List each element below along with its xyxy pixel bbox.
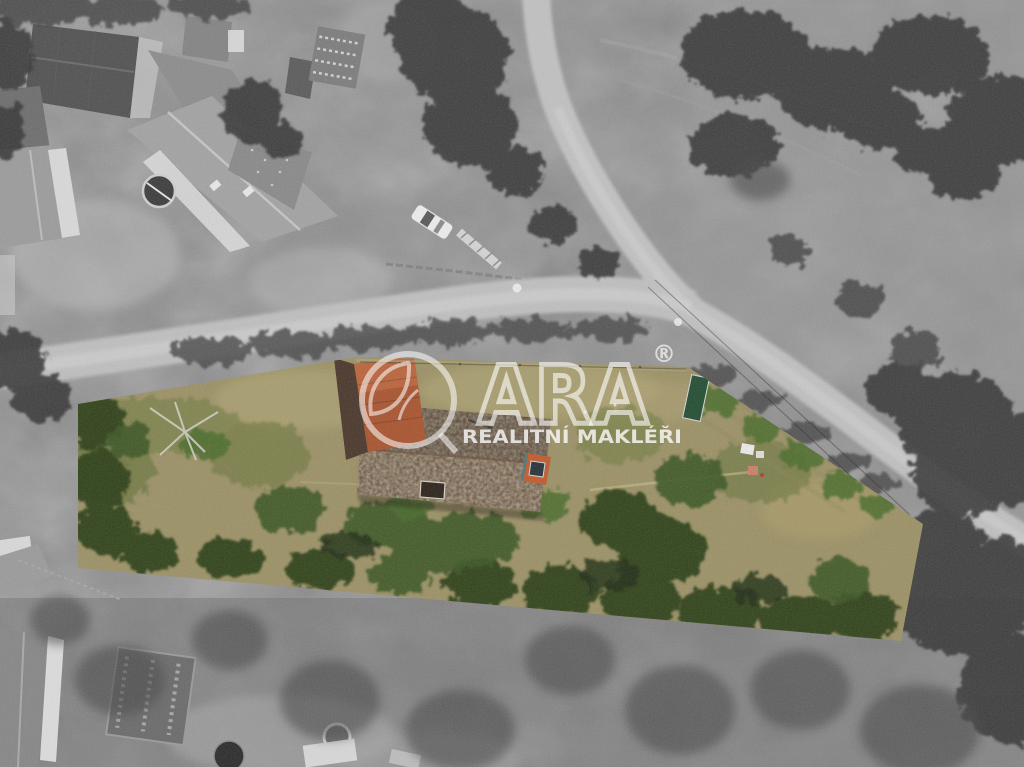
aerial-photo-canvas: ARA ® REALITNÍ MAKLÉŘI <box>0 0 1024 767</box>
aerial-property-photo: ARA ® REALITNÍ MAKLÉŘI <box>0 0 1024 767</box>
watermark-tagline: REALITNÍ MAKLÉŘI <box>462 425 682 448</box>
watermark-registered-mark: ® <box>652 340 676 368</box>
